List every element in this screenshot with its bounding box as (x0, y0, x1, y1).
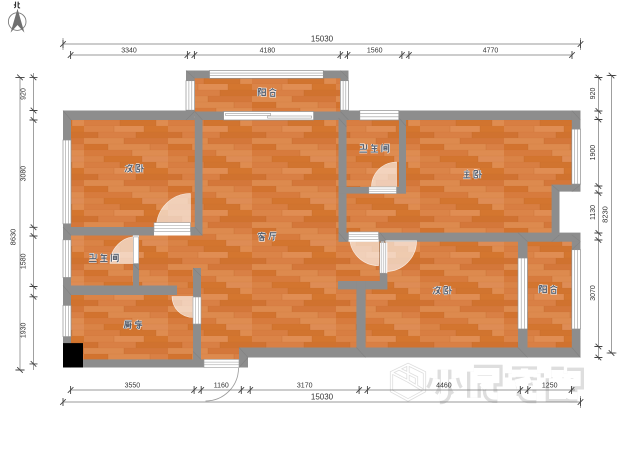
svg-text:920: 920 (590, 88, 597, 100)
svg-text:4460: 4460 (436, 383, 452, 390)
svg-text:1900: 1900 (590, 145, 597, 161)
svg-text:3070: 3070 (590, 285, 597, 301)
svg-text:1580: 1580 (21, 253, 28, 269)
svg-text:1560: 1560 (367, 48, 383, 55)
svg-text:8230: 8230 (601, 206, 610, 223)
svg-text:1930: 1930 (21, 323, 28, 339)
svg-text:3170: 3170 (297, 383, 313, 390)
svg-text:1250: 1250 (542, 383, 558, 390)
svg-text:3340: 3340 (121, 48, 137, 55)
svg-text:3080: 3080 (21, 166, 28, 182)
svg-text:4180: 4180 (260, 48, 276, 55)
svg-text:920: 920 (21, 88, 28, 100)
svg-text:1160: 1160 (214, 383, 229, 390)
svg-text:15030: 15030 (311, 393, 334, 402)
svg-text:8630: 8630 (9, 229, 18, 246)
svg-text:4770: 4770 (483, 48, 499, 55)
svg-text:1130: 1130 (590, 205, 597, 220)
svg-text:15030: 15030 (311, 35, 334, 44)
svg-text:3550: 3550 (125, 383, 141, 390)
